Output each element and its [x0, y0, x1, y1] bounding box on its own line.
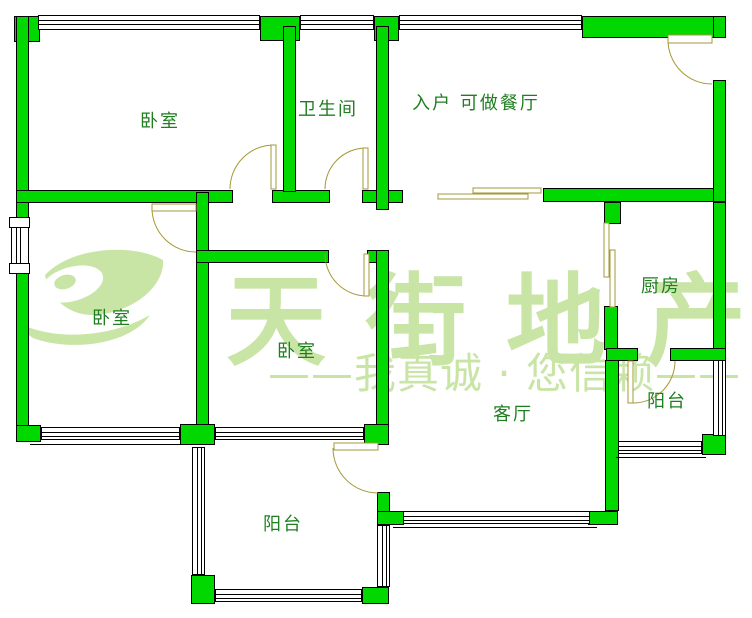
balcony-right-door-leaf [628, 361, 633, 403]
bedroom-center-door-arc [325, 254, 367, 296]
room-label-kitchen: 厨房 [641, 272, 681, 298]
entry-sliding-door-panel [473, 188, 541, 193]
entry-door-arc [668, 40, 712, 84]
room-label-entry-dining: 入户 可做餐厅 [412, 89, 540, 115]
kitchen-sliding-door-panel [604, 223, 609, 277]
room-label-bedroom-mid-left: 卧室 [92, 304, 132, 330]
bedroom-center-door-leaf [364, 254, 369, 296]
balcony-bottom-door-arc [333, 448, 378, 493]
room-label-living-room: 客厅 [493, 400, 533, 426]
entry-sliding-door-panel [438, 194, 528, 199]
room-label-balcony-right: 阳台 [647, 387, 687, 413]
entry-door-leaf [668, 35, 712, 43]
room-label-bedroom-top-left: 卧室 [140, 107, 180, 133]
room-label-bedroom-center: 卧室 [277, 337, 317, 363]
bedroom-top-left-door-leaf [271, 145, 276, 189]
bathroom-door-leaf [363, 148, 368, 189]
balcony-bottom-door-leaf [334, 443, 378, 450]
room-label-balcony-bottom: 阳台 [263, 510, 303, 536]
bedroom-mid-left-door-arc [152, 208, 196, 252]
room-label-bathroom: 卫生间 [298, 95, 358, 121]
floor-plan: 天街地产 ——我真诚 · 您信赖—— 卧室 [0, 0, 752, 618]
bedroom-top-left-door-arc [230, 145, 274, 189]
bedroom-mid-left-door-leaf [152, 204, 196, 211]
bathroom-door-arc [325, 148, 366, 189]
kitchen-sliding-door-panel [610, 250, 615, 307]
